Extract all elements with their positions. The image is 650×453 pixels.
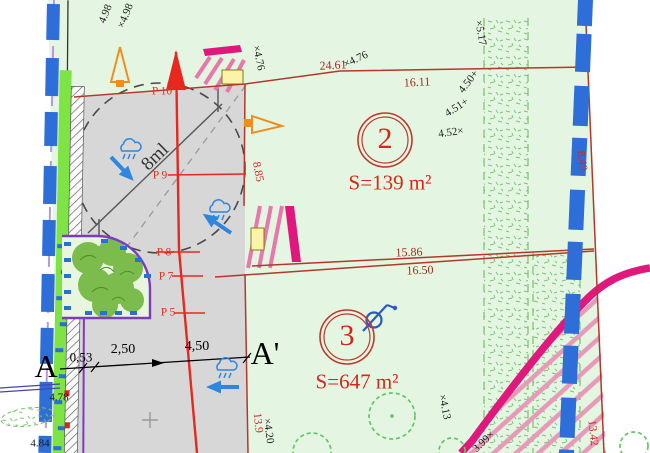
profile-point-label: P 8	[157, 247, 172, 259]
dimension-label: 16.50	[406, 264, 433, 277]
dimension-label: 8.85	[249, 161, 264, 183]
stair-landing	[222, 70, 243, 84]
profile-point-label: P 7	[159, 271, 174, 283]
segment-dimension: 2,50	[111, 343, 136, 357]
profile-point-label: P 5	[161, 307, 176, 319]
spot-elevation: 4.78	[49, 393, 68, 404]
dimension-label: 15.86	[395, 246, 422, 259]
dimension-label: 8.49	[574, 150, 588, 172]
site-plan: 4.98 ×4.98 ×4.76 24.61 ×4.76 16.11 ×5.17…	[0, 0, 650, 453]
dimension-label: 16.11	[403, 75, 430, 88]
hydrant-mark	[65, 422, 70, 428]
segment-dimension: 0,53	[70, 351, 93, 364]
boundary-parcel2-left	[244, 84, 245, 206]
parcel-number: 3	[340, 321, 355, 351]
spot-elevation: 4.84	[30, 439, 49, 450]
parcel-number: 2	[378, 124, 393, 154]
section-marker-a-prime: A'	[251, 337, 280, 369]
profile-point-label: P 10	[152, 86, 172, 98]
dimension-label: 13.42	[585, 420, 599, 447]
parcel-area: S=647 m²	[316, 372, 399, 393]
parcel-area: S=139 m²	[349, 173, 432, 194]
segment-dimension: 4,50	[185, 340, 210, 354]
stair-landing	[251, 228, 264, 250]
section-marker-a: A	[34, 350, 57, 382]
profile-point-label: P 9	[153, 170, 168, 182]
spot-elevation: ×4.20	[261, 418, 275, 445]
